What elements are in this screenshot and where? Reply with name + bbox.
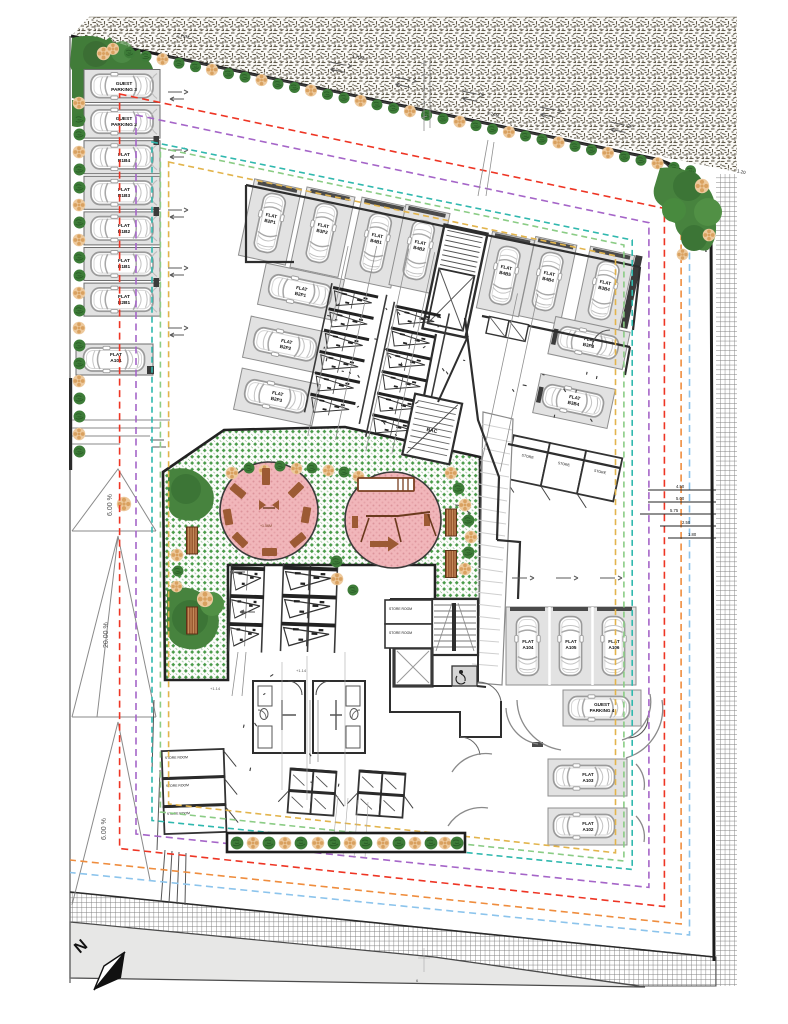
svg-text:FLAT: FLAT xyxy=(565,639,577,644)
svg-text:6.00 %: 6.00 % xyxy=(101,818,108,840)
svg-text:FLAT: FLAT xyxy=(582,821,594,826)
svg-text:PARKING 2: PARKING 2 xyxy=(111,122,137,128)
svg-text:5.00: 5.00 xyxy=(676,496,685,501)
svg-text:A105: A105 xyxy=(566,645,577,650)
svg-text:GUEST: GUEST xyxy=(116,81,133,87)
svg-text:1.80: 1.80 xyxy=(688,532,697,537)
svg-text:A103: A103 xyxy=(583,778,594,783)
svg-text:+1.56M: +1.56M xyxy=(260,524,272,528)
svg-text:FLAT: FLAT xyxy=(522,639,534,644)
svg-text:5.75: 5.75 xyxy=(670,508,679,513)
svg-text:+1.14: +1.14 xyxy=(210,686,221,691)
svg-text:+1.14: +1.14 xyxy=(296,668,307,673)
svg-text:PARKING 4: PARKING 4 xyxy=(590,708,615,713)
svg-text:A102: A102 xyxy=(583,827,594,832)
svg-text:20.00 %: 20.00 % xyxy=(103,622,110,648)
svg-text:FLAT: FLAT xyxy=(582,772,594,777)
svg-text:4.50: 4.50 xyxy=(676,484,685,489)
svg-text:A106: A106 xyxy=(609,645,620,650)
svg-text:FLAT: FLAT xyxy=(608,639,620,644)
svg-text:A104: A104 xyxy=(523,645,534,650)
svg-text:2.50: 2.50 xyxy=(682,520,691,525)
svg-text:GUEST: GUEST xyxy=(594,702,610,707)
svg-text:GUEST: GUEST xyxy=(116,116,133,122)
svg-text:STORE ROOM: STORE ROOM xyxy=(389,607,412,611)
svg-text:6.00 %: 6.00 % xyxy=(107,494,114,516)
svg-text:PARKING 3: PARKING 3 xyxy=(111,87,137,93)
svg-text:STORE ROOM: STORE ROOM xyxy=(389,631,412,635)
